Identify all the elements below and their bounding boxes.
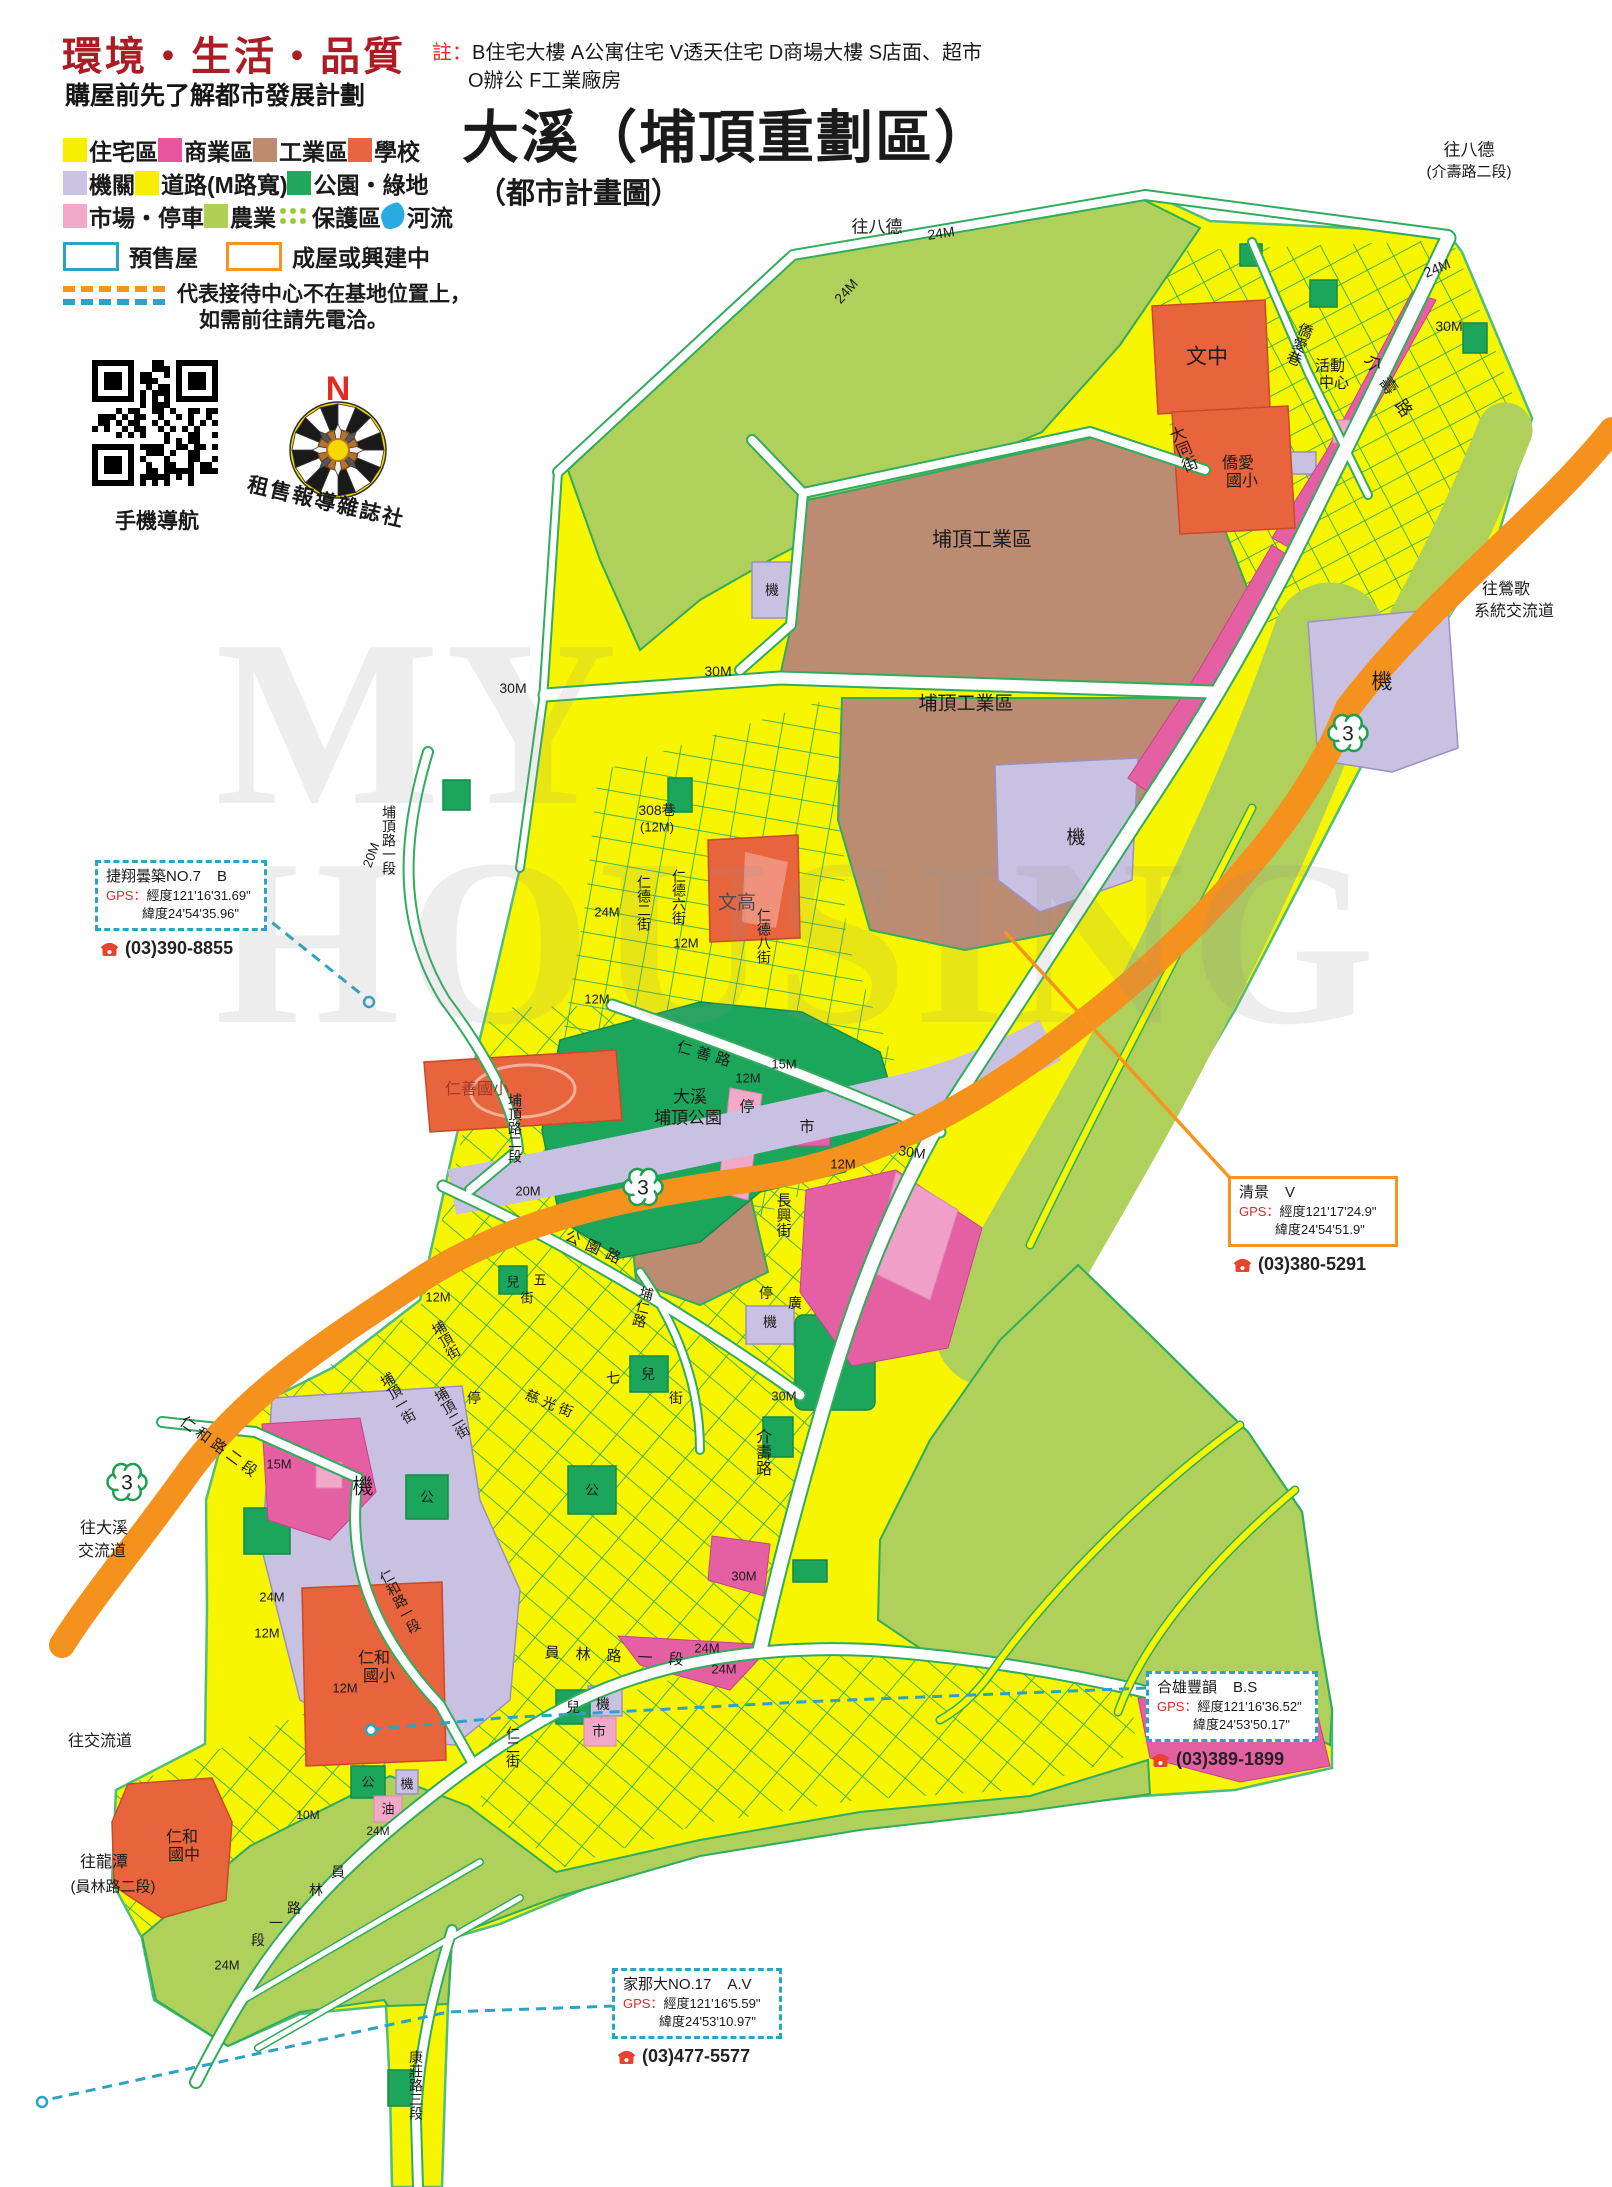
callout-box: 家那大NO.17A.VGPS：經度121'16'5.59"緯度24'53'10.… — [612, 1968, 782, 2039]
callout-gps-lng: GPS：經度121'16'5.59" — [623, 1995, 771, 2013]
callout-phone: (03)389-1899 — [1150, 1749, 1284, 1770]
callout-phone-number: (03)390-8855 — [125, 938, 233, 959]
callout-phone-number: (03)389-1899 — [1176, 1749, 1284, 1770]
callout-gps-lat: 緯度24'53'50.17" — [1157, 1716, 1307, 1734]
callout-phone: (03)477-5577 — [616, 2046, 750, 2067]
callouts: 捷翔曇築NO.7BGPS：經度121'16'31.69"緯度24'54'35.9… — [0, 0, 1612, 2187]
callout-phone: (03)390-8855 — [99, 938, 233, 959]
callout-gps-lng: GPS：經度121'16'31.69" — [106, 887, 256, 905]
callout-gps-lat: 緯度24'54'35.96" — [106, 905, 256, 923]
callout-box: 捷翔曇築NO.7BGPS：經度121'16'31.69"緯度24'54'35.9… — [95, 860, 267, 931]
callout-phone: (03)380-5291 — [1232, 1254, 1366, 1275]
callout-type: V — [1285, 1184, 1295, 1201]
callout-type: A.V — [727, 1976, 751, 1993]
callout-type: B — [217, 868, 227, 885]
page: 333 N MY HOUSING 環境・生活・品質 購屋前先了解都市發展計劃 註… — [0, 0, 1612, 2187]
callout-name: 清景V — [1239, 1182, 1387, 1203]
callout-name: 合雄豐韻B.S — [1157, 1677, 1307, 1698]
phone-icon — [1150, 1751, 1171, 1769]
phone-icon — [99, 940, 120, 958]
callout-box: 合雄豐韻B.SGPS：經度121'16'36.52"緯度24'53'50.17" — [1146, 1671, 1318, 1742]
phone-icon — [1232, 1256, 1253, 1274]
callout-name: 捷翔曇築NO.7B — [106, 866, 256, 887]
callout-gps-lat: 緯度24'53'10.97" — [623, 2013, 771, 2031]
callout-type: B.S — [1233, 1679, 1257, 1696]
callout-gps-lat: 緯度24'54'51.9" — [1239, 1221, 1387, 1239]
phone-icon — [616, 2048, 637, 2066]
callout-gps-lng: GPS：經度121'16'36.52" — [1157, 1698, 1307, 1716]
callout-box: 清景VGPS：經度121'17'24.9"緯度24'54'51.9" — [1228, 1176, 1398, 1247]
callout-gps-lng: GPS：經度121'17'24.9" — [1239, 1203, 1387, 1221]
callout-name: 家那大NO.17A.V — [623, 1974, 771, 1995]
callout-phone-number: (03)477-5577 — [642, 2046, 750, 2067]
callout-phone-number: (03)380-5291 — [1258, 1254, 1366, 1275]
